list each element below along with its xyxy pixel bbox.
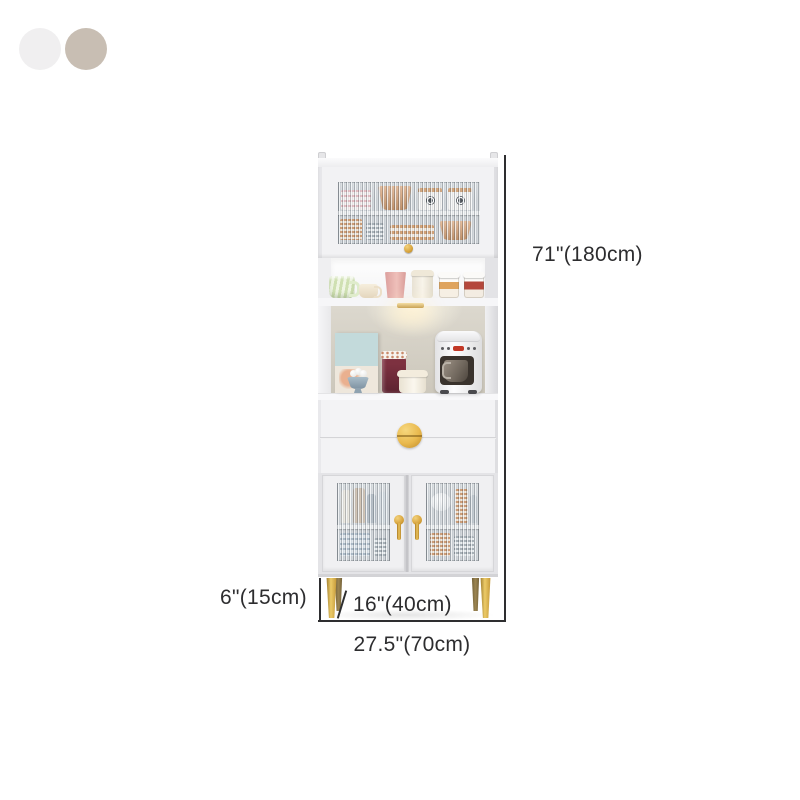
lower-door-left-glass xyxy=(337,483,390,561)
counter-canister xyxy=(399,370,426,393)
fluted-glass-texture xyxy=(338,182,480,244)
depth-dimension-label: 16"(40cm) xyxy=(353,593,452,616)
leg-height-dimension-label: 6"(15cm) xyxy=(220,586,306,609)
height-dimension-line xyxy=(504,155,506,621)
cream-cup xyxy=(359,284,378,298)
leg-height-dimension-line xyxy=(319,578,321,620)
lower-door-right-glass xyxy=(426,483,479,561)
upper-door-glass xyxy=(338,182,480,244)
dessert-jar-1 xyxy=(439,275,459,298)
color-swatch-beige[interactable] xyxy=(65,28,107,70)
white-canister xyxy=(412,270,433,298)
width-dimension-label: 27.5"(70cm) xyxy=(311,633,513,656)
door-center-seam xyxy=(405,475,409,572)
drawer-knob xyxy=(397,423,422,448)
green-striped-mug xyxy=(329,276,355,298)
led-light-bar xyxy=(397,303,424,308)
width-dimension-line xyxy=(318,620,506,622)
upper-door-knob xyxy=(404,244,413,253)
door-handle-left xyxy=(394,515,404,542)
fluted-glass-texture xyxy=(337,483,390,561)
egg-bowl xyxy=(347,374,369,393)
cabinet-leg-back-right xyxy=(471,578,480,611)
dessert-jar-2 xyxy=(464,275,484,298)
product-image-cabinet xyxy=(318,148,498,620)
upper-glass-door xyxy=(318,167,498,258)
lower-door-right xyxy=(411,475,494,572)
coffee-maker-display xyxy=(453,346,464,351)
lower-door-left xyxy=(322,475,405,572)
hutch-side-wall-right xyxy=(485,306,498,395)
hutch-side-wall-left xyxy=(318,306,331,395)
fluted-glass-texture xyxy=(426,483,479,561)
height-dimension-label: 71"(180cm) xyxy=(532,243,643,266)
coffee-maker xyxy=(435,331,482,393)
lower-door-section xyxy=(318,473,498,577)
drawer-section xyxy=(318,400,498,473)
door-handle-right xyxy=(412,515,422,542)
color-swatch-white[interactable] xyxy=(19,28,61,70)
